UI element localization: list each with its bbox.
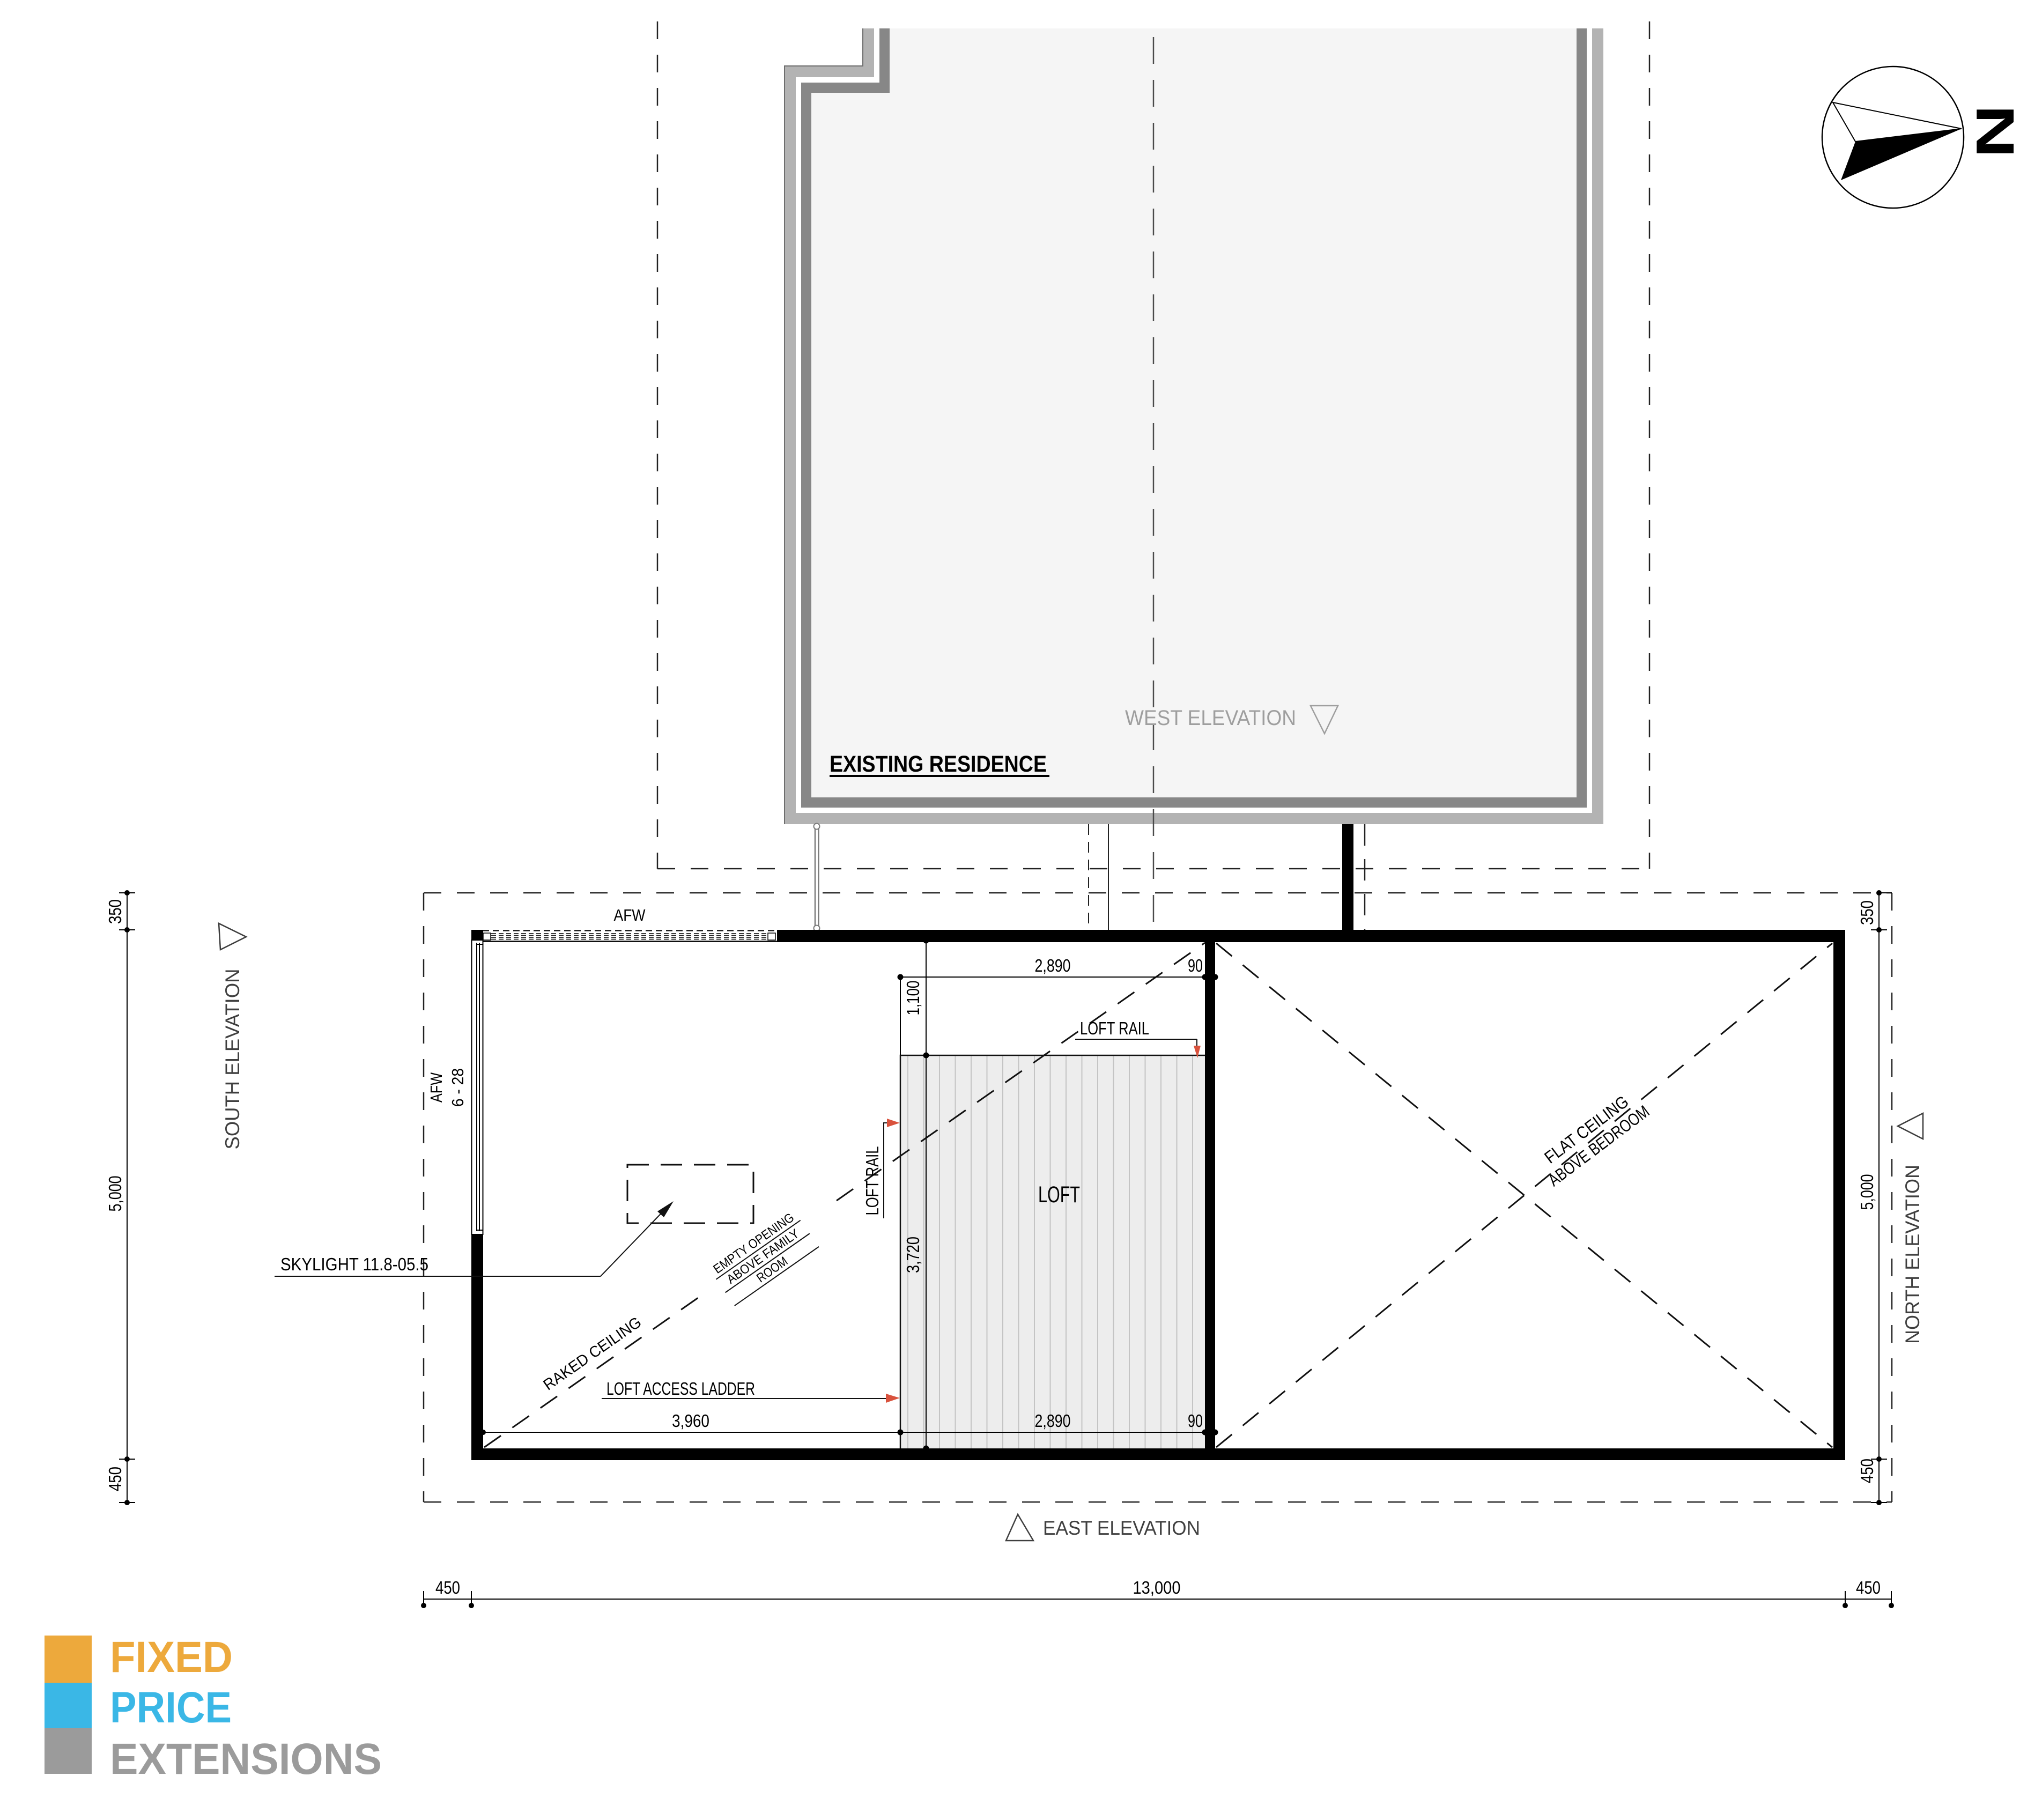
- svg-text:3,720: 3,720: [903, 1237, 923, 1273]
- svg-text:90: 90: [1188, 956, 1203, 975]
- svg-text:SOUTH ELEVATION: SOUTH ELEVATION: [221, 969, 243, 1150]
- svg-text:WEST ELEVATION: WEST ELEVATION: [1125, 706, 1296, 730]
- svg-text:AFW: AFW: [614, 906, 646, 924]
- svg-text:N: N: [1965, 105, 2025, 158]
- svg-text:2,890: 2,890: [1035, 1411, 1071, 1431]
- svg-text:90: 90: [1188, 1411, 1203, 1431]
- svg-text:450: 450: [1857, 1459, 1877, 1483]
- svg-text:EXTENSIONS: EXTENSIONS: [110, 1735, 382, 1784]
- svg-text:NORTH ELEVATION: NORTH ELEVATION: [1902, 1165, 1923, 1344]
- svg-text:5,000: 5,000: [105, 1176, 125, 1212]
- svg-text:450: 450: [105, 1467, 125, 1491]
- svg-text:5,000: 5,000: [1857, 1174, 1877, 1210]
- svg-text:LOFT: LOFT: [1038, 1182, 1080, 1208]
- svg-text:SKYLIGHT 11.8-05.5: SKYLIGHT 11.8-05.5: [280, 1254, 428, 1274]
- svg-text:LOFT RAIL: LOFT RAIL: [862, 1146, 882, 1216]
- svg-text:450: 450: [435, 1578, 460, 1597]
- svg-text:6 - 28: 6 - 28: [448, 1068, 467, 1107]
- svg-text:3,960: 3,960: [672, 1411, 709, 1431]
- svg-text:13,000: 13,000: [1133, 1578, 1181, 1597]
- svg-text:FIXED: FIXED: [110, 1633, 233, 1682]
- svg-text:1,100: 1,100: [903, 981, 923, 1016]
- svg-text:350: 350: [1857, 900, 1877, 925]
- svg-text:2,890: 2,890: [1035, 956, 1071, 975]
- svg-text:EXISTING RESIDENCE: EXISTING RESIDENCE: [830, 751, 1047, 777]
- svg-text:350: 350: [105, 899, 125, 924]
- svg-text:LOFT ACCESS LADDER: LOFT ACCESS LADDER: [606, 1379, 755, 1399]
- svg-text:PRICE: PRICE: [110, 1683, 232, 1732]
- svg-text:450: 450: [1856, 1578, 1881, 1597]
- svg-text:EAST ELEVATION: EAST ELEVATION: [1043, 1517, 1200, 1539]
- svg-text:LOFT RAIL: LOFT RAIL: [1080, 1018, 1149, 1038]
- svg-text:AFW: AFW: [427, 1072, 446, 1103]
